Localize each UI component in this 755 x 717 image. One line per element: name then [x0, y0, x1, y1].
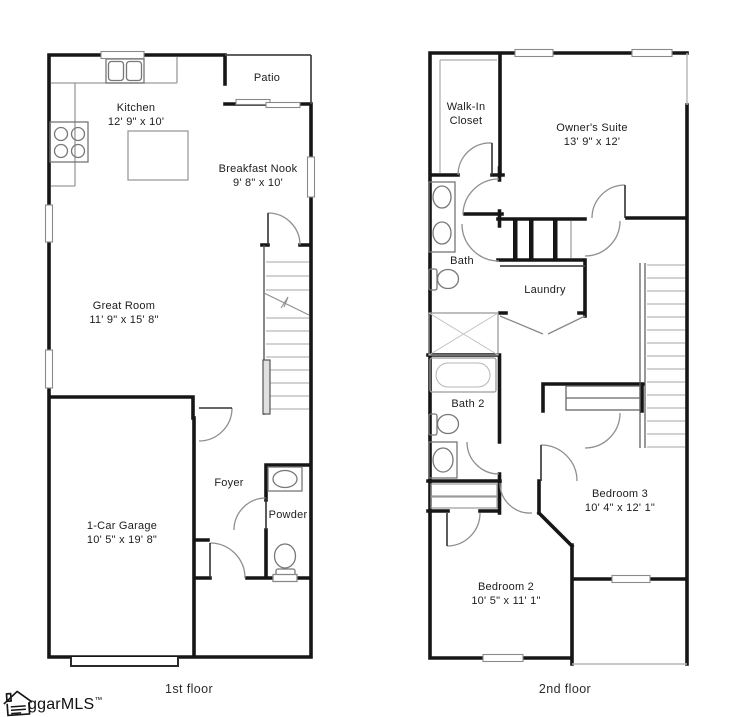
floor-caption-1: 1st floor: [165, 682, 213, 696]
room-label-bedroom-2: Bedroom 2 10' 5" x 11' 1": [471, 581, 540, 608]
room-label-garage: 1-Car Garage 10' 5" x 19' 8": [87, 520, 157, 547]
bath2-sink-icon: [429, 442, 457, 478]
garage-door: [71, 657, 178, 666]
logo-text: ggarMLS™: [28, 693, 103, 717]
second-floor-stairs: [640, 263, 685, 448]
kitchen-island: [128, 131, 188, 180]
patio-slider-door: [236, 100, 300, 108]
room-label-breakfast-nook: Breakfast Nook 9' 8" x 10': [219, 163, 298, 190]
bath-toilet-icon: [429, 269, 459, 290]
room-label-powder: Powder: [269, 509, 308, 523]
trademark: ™: [94, 696, 102, 705]
floorplan-image: Kitchen 12' 9" x 10' Patio Breakfast Noo…: [0, 0, 755, 717]
room-label-bath-2: Bath 2: [451, 398, 484, 412]
laundry-bifold-doors: [500, 316, 585, 334]
bath-fixtures: [429, 182, 498, 478]
first-floor-stairs: [263, 245, 309, 415]
kitchen-sink-icon: [106, 59, 144, 83]
bedroom3-closet: [566, 386, 640, 410]
room-label-laundry: Laundry: [524, 284, 566, 298]
floor-caption-2: 2nd floor: [539, 682, 591, 696]
first-floor-plan: [46, 52, 315, 667]
room-label-kitchen: Kitchen 12' 9" x 10': [108, 102, 164, 129]
powder-toilet-icon: [275, 544, 296, 576]
stair-rail: [263, 360, 270, 414]
room-label-bedroom-3: Bedroom 3 10' 4" x 12' 1": [585, 488, 655, 515]
double-vanity-icon: [429, 182, 455, 252]
room-label-walk-in-closet: Walk-In Closet: [434, 101, 498, 128]
stove-icon: [50, 122, 88, 162]
room-label-patio: Patio: [254, 72, 280, 86]
house-icon: [2, 689, 34, 717]
linen-closet: [431, 484, 497, 508]
bath2-toilet-icon: [429, 414, 459, 435]
room-label-foyer: Foyer: [214, 477, 243, 491]
shower-icon: [429, 313, 498, 355]
threshold: [273, 575, 297, 582]
mls-logo: ggarMLS™: [3, 690, 103, 717]
tub-icon: [430, 358, 496, 392]
room-label-great-room: Great Room 11' 9" x 15' 8": [89, 300, 158, 327]
room-label-owners-suite: Owner's Suite 13' 9" x 12': [556, 122, 627, 149]
powder-fixtures: [268, 467, 302, 582]
room-label-bath: Bath: [450, 255, 474, 269]
second-floor-doors: [447, 143, 625, 546]
